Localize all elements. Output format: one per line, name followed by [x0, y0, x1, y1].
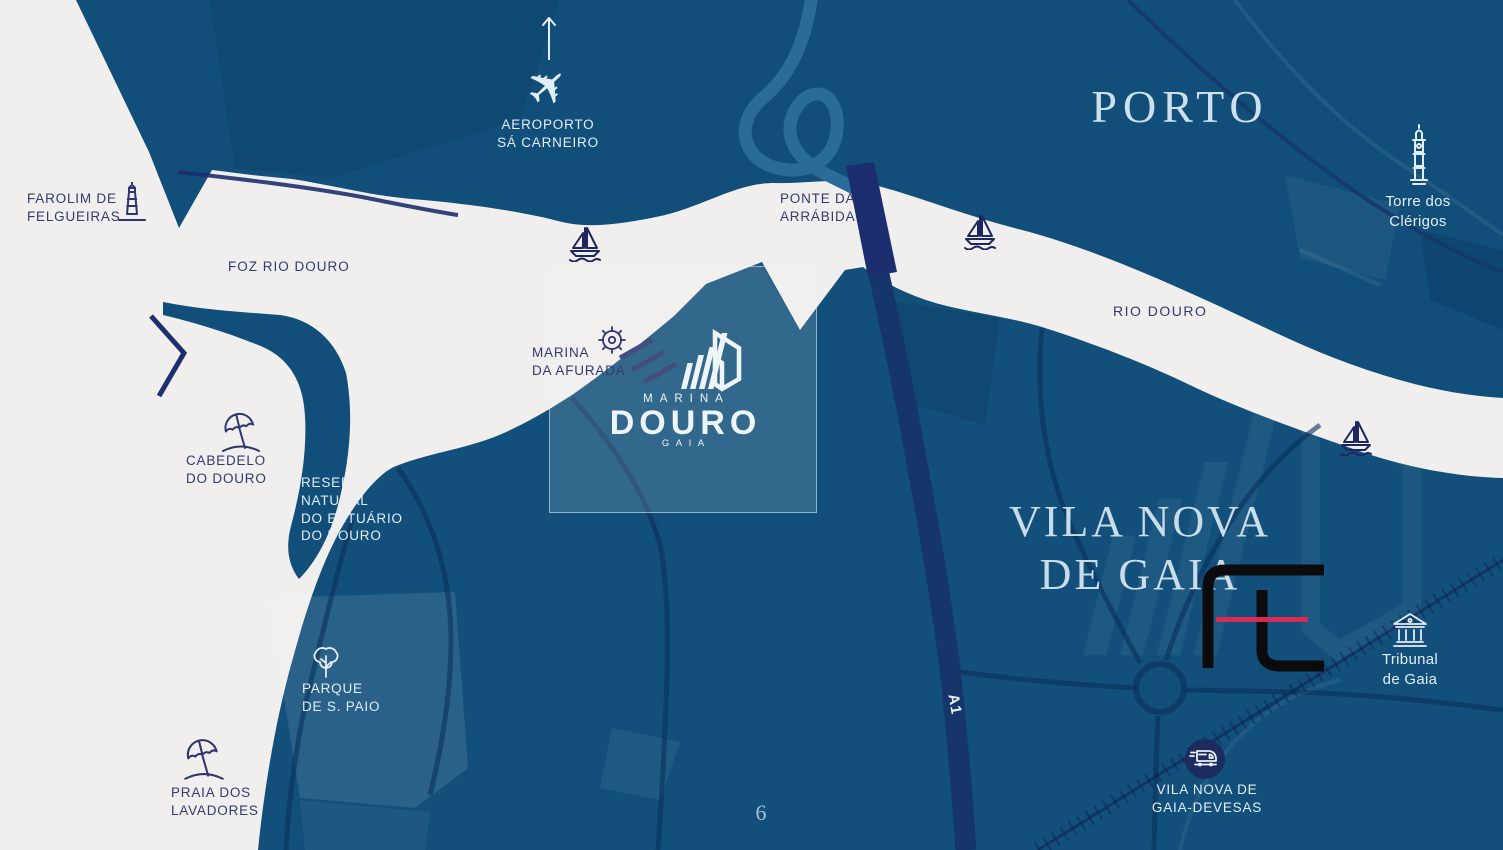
label-rio-douro: RIO DOURO: [1113, 302, 1207, 320]
label-parque-de-s-paio: PARQUE DE S. PAIO: [302, 680, 380, 716]
beach-umbrella-icon: [179, 738, 229, 782]
lighthouse-icon: [114, 182, 152, 224]
tree-icon: [310, 646, 342, 680]
map-canvas: MARINA DOURO GAIA PORTO VILA NOVA DE GAI…: [0, 0, 1503, 850]
train-station-icon: [1184, 738, 1226, 780]
label-praia-dos-lavadores: PRAIA DOS LAVADORES: [171, 784, 259, 820]
label-aeroporto-sa-carneiro: AEROPORTO SÁ CARNEIRO: [478, 116, 618, 152]
label-foz-rio-douro: FOZ RIO DOURO: [228, 258, 350, 276]
label-a1-highway: A1: [944, 693, 964, 717]
logo-text-gaia: GAIA: [550, 438, 816, 449]
sailboat-icon: [566, 226, 604, 262]
marina-douro-card: MARINA DOURO GAIA: [549, 266, 817, 513]
label-ponte-da-arrabida: PONTE DA ARRÁBIDA: [780, 190, 855, 226]
torre-clerigos-icon: [1404, 124, 1434, 188]
sailboat-icon: [1337, 420, 1375, 456]
beach-umbrella-icon: [217, 412, 265, 454]
label-marina-da-afurada: MARINA DA AFURADA: [532, 344, 626, 380]
corner-monogram-watermark: [1192, 548, 1337, 683]
label-tribunal-de-gaia: Tribunal de Gaia: [1366, 650, 1454, 690]
label-torre-dos-clerigos: Torre dos Clérigos: [1368, 192, 1468, 232]
marina-douro-logo-mark: [665, 327, 745, 393]
label-farolim-de-felgueiras: FAROLIM DE FELGUEIRAS: [27, 190, 121, 226]
label-vila-nova-de-gaia-devesas: VILA NOVA DE GAIA-DEVESAS: [1138, 781, 1276, 817]
label-reserva-natural: RESERVA NATURAL DO ESTUÁRIO DO DOURO: [301, 474, 403, 545]
courthouse-icon: [1388, 610, 1432, 650]
sailboat-icon: [961, 214, 999, 250]
city-title-porto: PORTO: [1060, 80, 1300, 133]
page-number: 6: [748, 800, 774, 826]
label-cabedelo-do-douro: CABEDELO DO DOURO: [186, 452, 267, 488]
